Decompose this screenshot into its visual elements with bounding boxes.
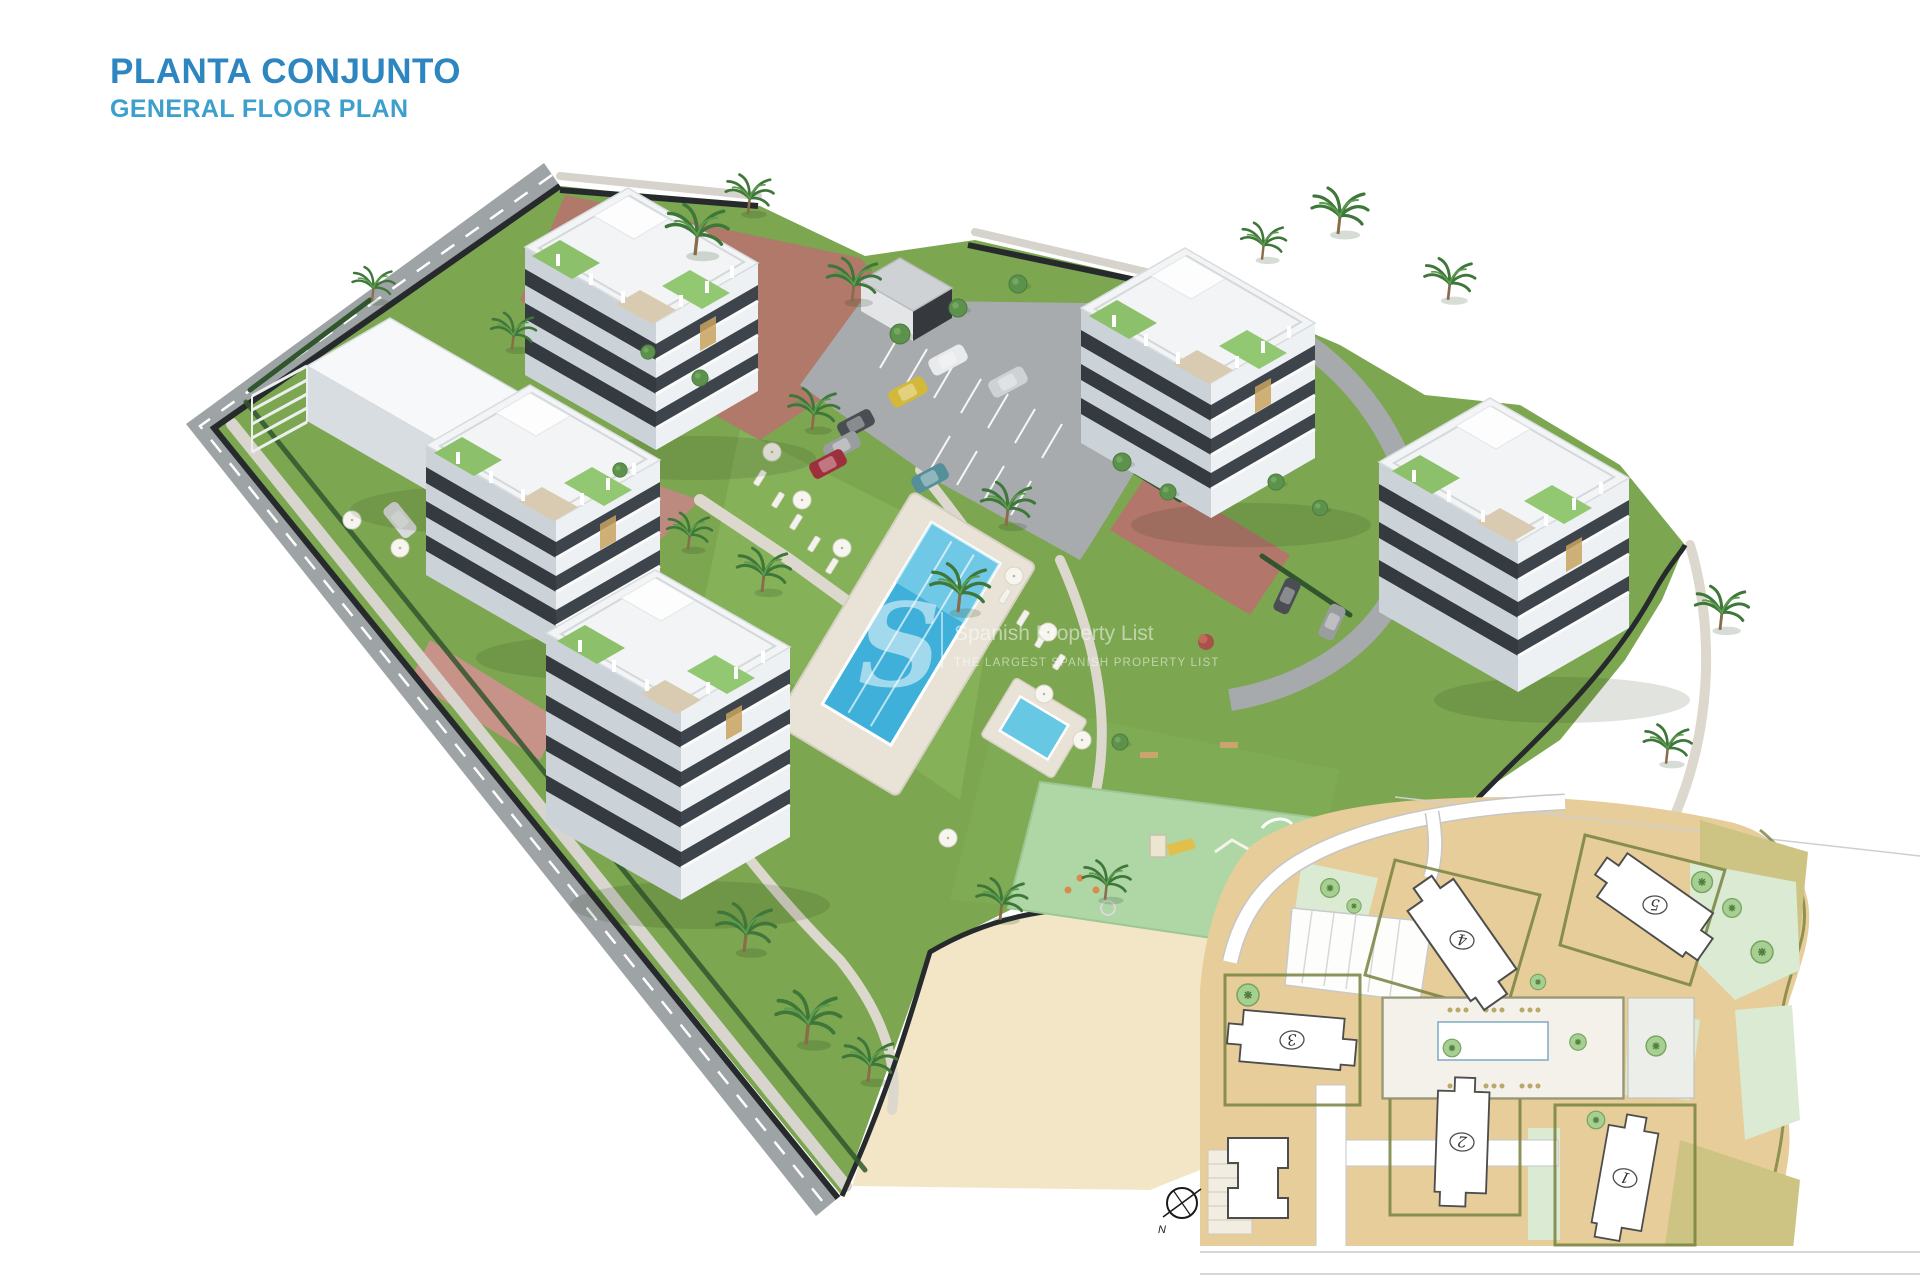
compass-north-label: N: [1158, 1224, 1166, 1236]
inset-building-club: [1228, 1138, 1288, 1218]
site-plan-render: S Spanish Property List THE LARGEST SPAN…: [0, 0, 1920, 1280]
watermark-line1: Spanish Property List: [954, 622, 1154, 645]
inset-label-5: 5: [1650, 895, 1660, 913]
bench-2: [1220, 742, 1238, 748]
watermark-line2: THE LARGEST SPANISH PROPERTY LIST: [954, 657, 1220, 669]
inset-site-plan: 4 5 3 2 1: [1158, 797, 1920, 1280]
inset-label-3: 3: [1286, 1030, 1297, 1049]
bench-1: [1140, 752, 1158, 758]
compass-rose: N: [1158, 1188, 1201, 1236]
watermark-logo: S: [858, 579, 941, 714]
play-tower: [1150, 835, 1166, 857]
inset-label-2: 2: [1457, 1132, 1469, 1151]
page: PLANTA CONJUNTO GENERAL FLOOR PLAN: [0, 0, 1920, 1280]
